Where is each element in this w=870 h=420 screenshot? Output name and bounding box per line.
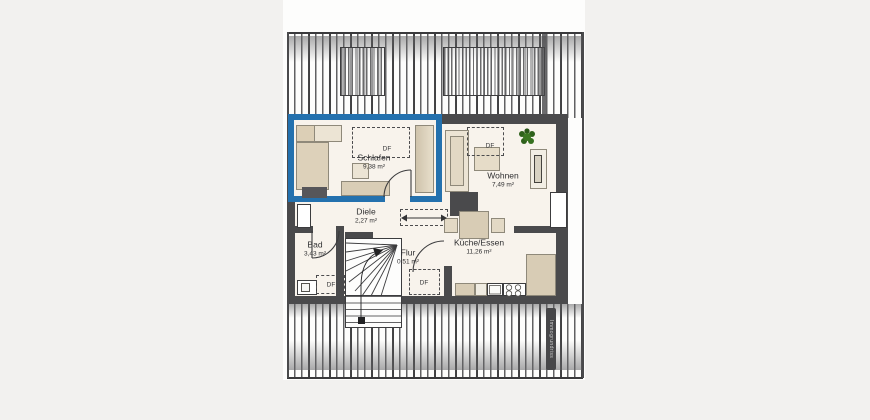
schlafen-door-opening <box>385 196 410 202</box>
kitchen-worktop <box>475 283 487 296</box>
room-name: Flur <box>397 247 419 258</box>
kitchen-stove <box>503 283 526 296</box>
room-area: 9,38 m² <box>357 163 390 171</box>
kitchen-counter-vertical <box>526 254 556 296</box>
room-label-schlafen: Schlafen 9,38 m² <box>357 152 390 171</box>
room-label-bad: Bad 3,43 m² <box>304 239 326 258</box>
room-name: Küche/Essen <box>454 237 504 248</box>
window-right <box>550 192 567 228</box>
roof-edge-right <box>582 32 584 378</box>
room-area: 2,27 m² <box>355 217 377 225</box>
df-label-schlafen: DF <box>383 146 392 153</box>
roof-shadow-bottom-upper <box>287 304 583 318</box>
bed-pillow <box>296 125 315 142</box>
room-label-wohnen: Wohnen 7,49 m² <box>487 170 519 189</box>
watermark-text: Immogrundriss <box>548 320 554 358</box>
roof-dormer-left <box>340 47 385 96</box>
radiator-diele <box>297 204 311 228</box>
washbasin-bowl <box>301 283 310 292</box>
roof-eave-line-bottom <box>287 377 583 379</box>
room-name: Wohnen <box>487 170 519 181</box>
room-label-flur: Flur 0,51 m² <box>397 247 419 266</box>
df-label-wohnen: DF <box>486 143 495 150</box>
room-area: 3,43 m² <box>304 250 326 258</box>
roof-window-marker-wohnen <box>467 127 504 156</box>
wall-top-right <box>436 114 568 124</box>
room-name: Schlafen <box>357 152 390 163</box>
room-label-kueche: Küche/Essen 11,26 m² <box>454 237 504 256</box>
roof-shadow-bottom-lower <box>287 340 583 370</box>
room-area: 7,49 m² <box>487 181 519 189</box>
room-area: 11,26 m² <box>454 248 504 256</box>
dining-table <box>459 211 489 239</box>
room-area: 0,51 m² <box>397 258 419 266</box>
df-label-flur: DF <box>420 280 429 287</box>
kitchen-cabinet <box>455 283 475 296</box>
dresser <box>302 187 327 198</box>
wardrobe <box>415 125 434 193</box>
dining-chair-right <box>491 218 505 233</box>
opening-marker-dashed <box>400 209 448 226</box>
room-name: Diele <box>355 206 377 217</box>
staircase-lower-flight <box>345 296 402 328</box>
room-label-diele: Diele 2,27 m² <box>355 206 377 225</box>
roof-corner-shadow <box>542 34 546 118</box>
watermark-bar: Immogrundriss <box>546 308 556 370</box>
room-name: Bad <box>304 239 326 250</box>
bed <box>296 142 329 190</box>
sofa-cushions <box>450 136 464 186</box>
dining-chair-left <box>444 218 458 233</box>
tv-board-inner <box>534 155 542 183</box>
wall-bottom-right <box>402 296 556 304</box>
wall-bottom-left <box>287 296 345 304</box>
wall-flur-kueche <box>444 266 452 296</box>
kitchen-sink <box>487 283 503 296</box>
roof-dormer-right <box>443 47 545 96</box>
staircase <box>345 238 402 296</box>
df-label-bad: DF <box>327 282 336 289</box>
desk <box>341 181 390 196</box>
floorplan-image: Schlafen 9,38 m² Wohnen 7,49 m² Diele 2,… <box>0 0 870 420</box>
